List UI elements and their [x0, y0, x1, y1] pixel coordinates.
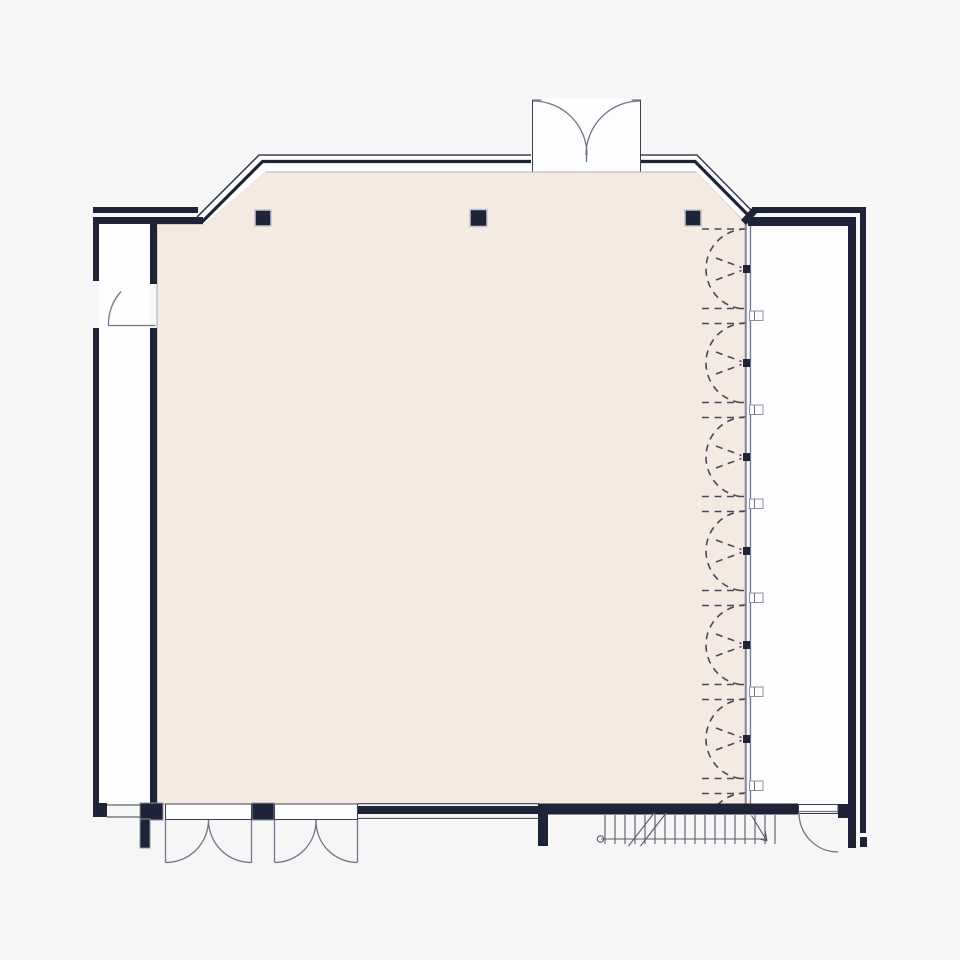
bottom-wall-right: [538, 804, 798, 815]
column-1: [255, 210, 271, 226]
top-left-wall-outer: [93, 207, 198, 213]
hall-left-wall-lower: [150, 328, 157, 803]
partition-bracket: [750, 781, 764, 791]
column-3: [685, 210, 701, 226]
floor-plan-canvas: [0, 0, 960, 960]
left-corridor: [99, 224, 150, 804]
partition-bracket: [750, 687, 764, 697]
bottom-wall-mid: [358, 806, 538, 814]
single-door-opening-bottom-right: [799, 805, 839, 814]
double-door-opening-right: [275, 804, 358, 820]
main-hall-floor: [157, 172, 745, 804]
right-exterior-wall-inner: [848, 226, 856, 848]
right-corridor: [750, 226, 848, 804]
partition-bracket: [750, 499, 764, 509]
hall-left-wall-upper: [150, 224, 157, 284]
left-exterior-wall-foot: [93, 803, 107, 817]
partition-bracket: [750, 405, 764, 415]
partition-track-tick: [743, 735, 750, 743]
top-left-wall-inner: [93, 217, 203, 224]
partition-track-tick: [743, 641, 750, 649]
right-exterior-wall-outer: [860, 213, 866, 833]
partition-track-tick: [743, 359, 750, 367]
bottom-pier-stub: [538, 814, 548, 846]
left-exterior-wall-upper: [93, 224, 99, 281]
partition-track-tick: [743, 265, 750, 273]
bottom-center-pier: [252, 803, 274, 820]
column-2: [470, 210, 487, 227]
bottom-left-pier-return: [140, 819, 150, 848]
partition-bracket: [750, 593, 764, 603]
double-door-opening-left: [166, 804, 252, 820]
top-right-wall-outer: [752, 207, 866, 213]
left-exterior-wall-lower: [93, 328, 99, 803]
partition-bracket: [750, 311, 764, 321]
floor-plan-drawing: [0, 0, 960, 960]
bottom-left-corner-pier: [140, 803, 163, 820]
partition-track-tick: [743, 453, 750, 461]
right-exterior-wall-foot: [860, 837, 867, 847]
partition-track-tick: [743, 547, 750, 555]
top-right-wall-inner: [748, 217, 856, 226]
